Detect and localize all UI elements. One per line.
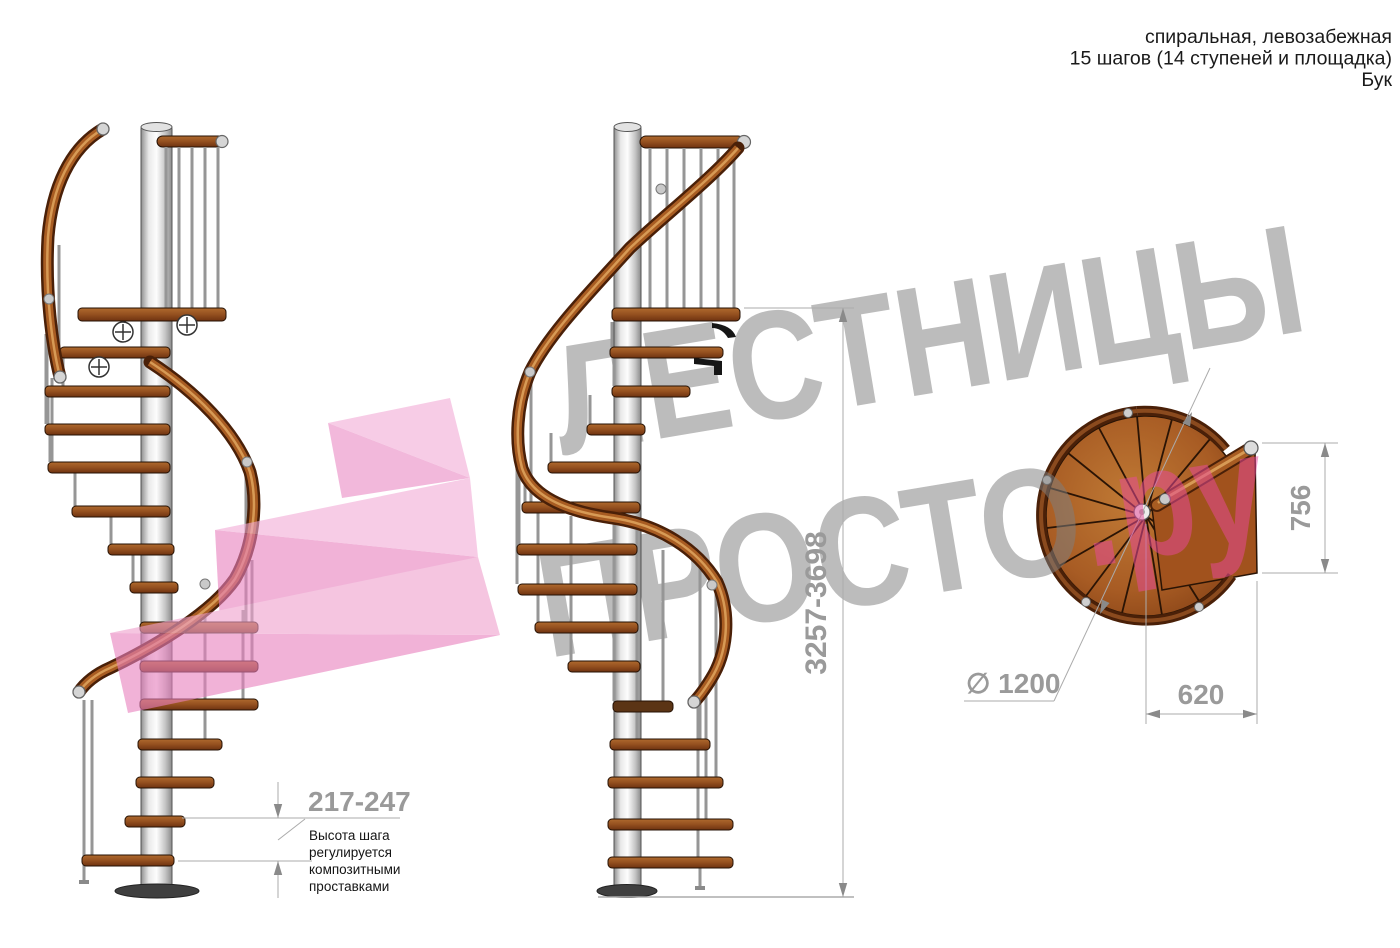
header-line-steps: 15 шагов (14 ступеней и площадка): [1070, 48, 1392, 70]
spiral-handrail-upper: [47, 129, 103, 377]
header-line-material: Бук: [1361, 69, 1392, 91]
handrail-sleeve: [525, 367, 535, 377]
note-line: регулируется: [309, 845, 392, 860]
landing-width-label: 620: [1178, 679, 1225, 710]
step-height-label: 217-247: [308, 786, 411, 817]
watermark-line2-pink: .ру: [1066, 399, 1278, 601]
handrail-end-cap: [73, 686, 85, 698]
technical-drawing-page: ∅ 1200 756 620 ЛЕСТНИЦЫ ПРОСТО.ру: [0, 0, 1400, 948]
watermark: ЛЕСТНИЦЫ ПРОСТО.ру: [525, 192, 1316, 691]
step-height-note: Высота шага регулируется композитными пр…: [309, 828, 400, 894]
handrail-end-cap: [688, 696, 700, 708]
handrail-sleeve: [200, 579, 210, 589]
staircase-drawing: ∅ 1200 756 620 ЛЕСТНИЦЫ ПРОСТО.ру: [0, 0, 1400, 948]
column-base: [597, 885, 657, 898]
handrail-sleeve: [707, 580, 717, 590]
note-line: композитными: [309, 862, 400, 877]
column-base: [115, 884, 199, 898]
diameter-label: ∅ 1200: [966, 668, 1060, 699]
handrail-sleeve: [656, 184, 666, 194]
landing-handrail-bar: [640, 136, 744, 148]
handrail-end-cap: [54, 371, 66, 383]
landing-balusters: [166, 147, 218, 308]
handrail-sleeve: [242, 457, 252, 467]
handrail-sleeve: [44, 294, 54, 304]
note-line: проставками: [309, 879, 389, 894]
left-staircase: [44, 123, 258, 899]
total-height-label: 3257-3698: [800, 531, 833, 674]
note-leader-line: [278, 819, 305, 840]
header: спиральная, левозабежная 15 шагов (14 ст…: [1070, 26, 1393, 91]
header-line-type: спиральная, левозабежная: [1145, 26, 1392, 48]
landing-depth-label: 756: [1285, 485, 1316, 532]
handrail-end-cap: [97, 123, 109, 135]
landing-handrail-bar: [157, 136, 225, 147]
note-line: Высота шага: [309, 828, 390, 843]
